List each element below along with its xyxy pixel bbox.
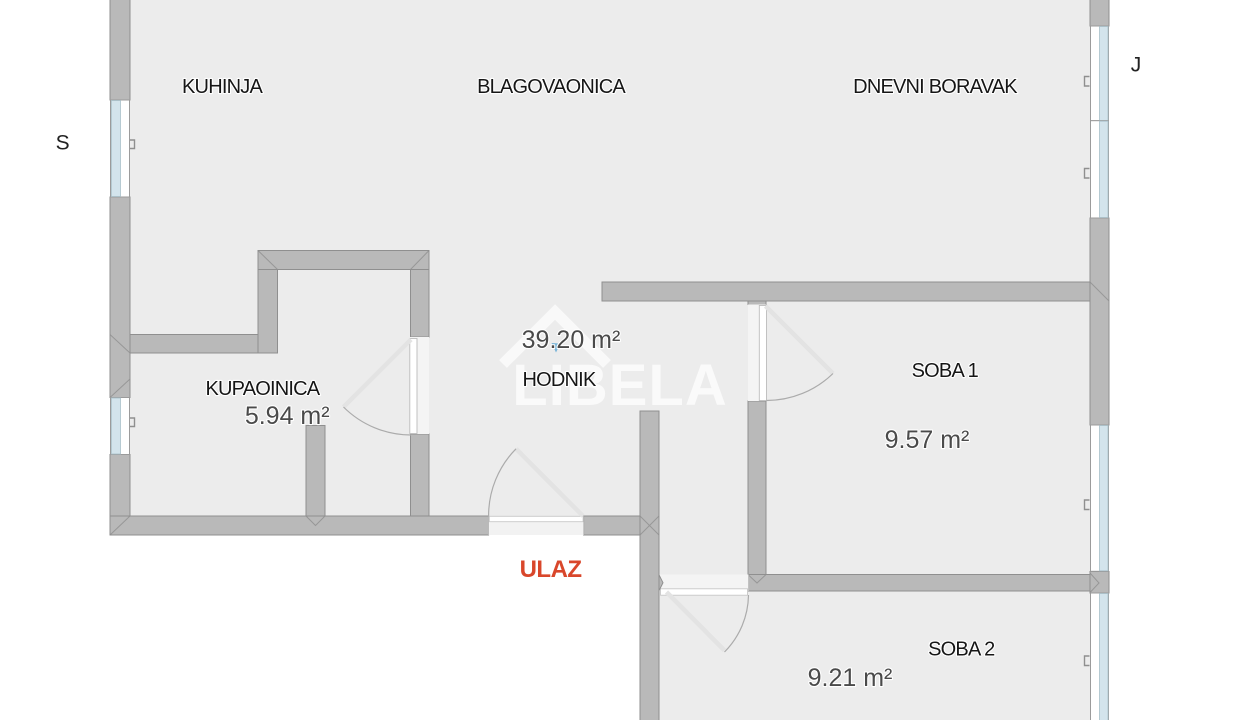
- svg-text:BLAGOVAONICA: BLAGOVAONICA: [477, 76, 626, 98]
- svg-text:S: S: [56, 131, 70, 154]
- svg-text:ULAZ: ULAZ: [520, 556, 582, 583]
- svg-text:39.20 m²: 39.20 m²: [522, 326, 621, 354]
- svg-text:HODNIK: HODNIK: [523, 369, 597, 391]
- svg-text:9.57 m²: 9.57 m²: [885, 426, 970, 454]
- svg-text:J: J: [1131, 54, 1142, 77]
- svg-text:KUHINJA: KUHINJA: [182, 76, 263, 98]
- svg-text:DNEVNI BORAVAK: DNEVNI BORAVAK: [853, 76, 1018, 98]
- svg-text:9.21 m²: 9.21 m²: [808, 664, 893, 692]
- svg-text:KUPAOINICA: KUPAOINICA: [205, 378, 320, 400]
- svg-text:SOBA 2: SOBA 2: [928, 639, 995, 661]
- svg-text:5.94 m²: 5.94 m²: [245, 402, 330, 430]
- svg-text:SOBA 1: SOBA 1: [912, 360, 979, 382]
